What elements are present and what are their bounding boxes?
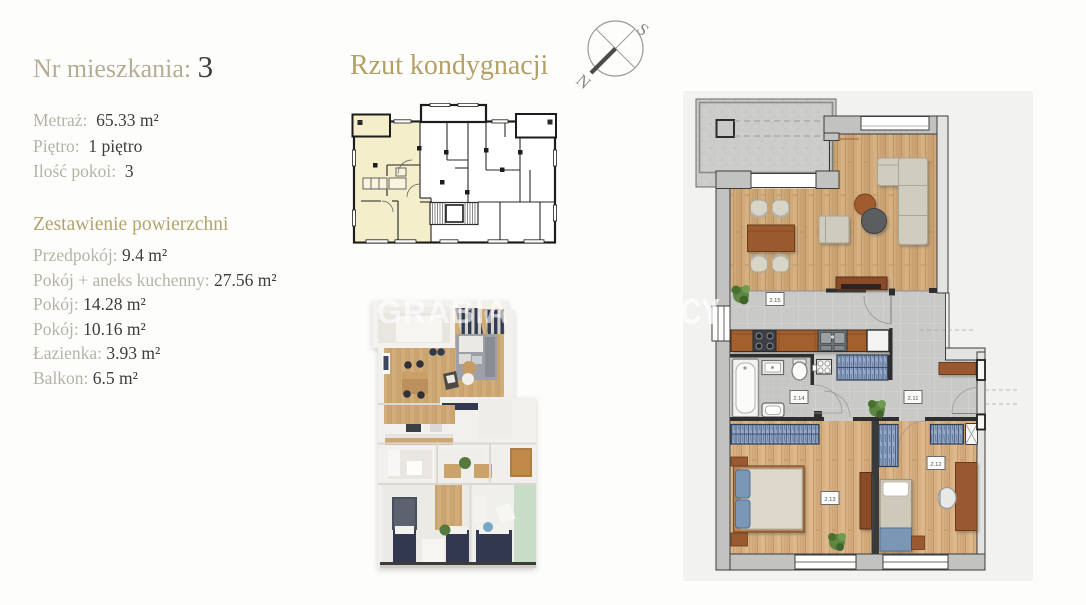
svg-text:2.13: 2.13 <box>824 497 835 503</box>
svg-text:2.11: 2.11 <box>908 396 919 402</box>
svg-text:2.12: 2.12 <box>930 462 941 468</box>
svg-text:2.14: 2.14 <box>793 396 805 402</box>
svg-text:N: N <box>573 71 595 93</box>
svg-text:2.15: 2.15 <box>769 298 780 304</box>
svg-text:S: S <box>633 19 652 40</box>
